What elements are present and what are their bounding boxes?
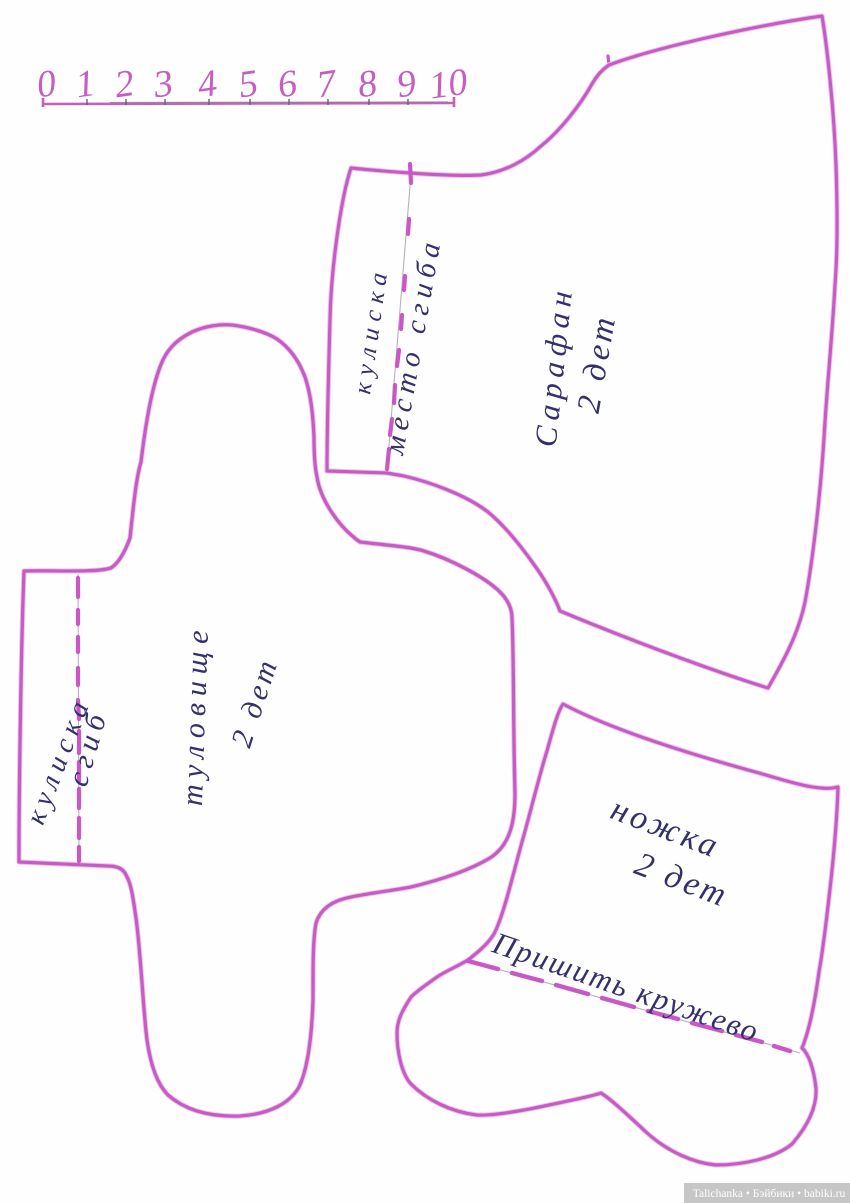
svg-text:2: 2: [112, 62, 137, 106]
svg-text:9: 9: [394, 62, 419, 106]
svg-text:6: 6: [275, 62, 300, 106]
svg-text:Пришить кружево: Пришить кружево: [487, 925, 764, 1050]
svg-text:4: 4: [195, 62, 220, 106]
svg-text:туловище: туловище: [176, 623, 215, 807]
svg-text:8: 8: [355, 62, 380, 106]
svg-text:Talichanka • Бэйбики • babiki.: Talichanka • Бэйбики • babiki.ru: [693, 1188, 846, 1200]
svg-text:1: 1: [73, 62, 98, 106]
svg-text:7: 7: [314, 62, 341, 107]
svg-text:Сарафан: Сарафан: [528, 283, 580, 448]
svg-text:2 дет: 2 дет: [630, 845, 734, 914]
svg-text:10: 10: [427, 61, 470, 108]
svg-text:2 дет: 2 дет: [225, 653, 285, 751]
svg-text:кулиска: кулиска: [349, 264, 394, 396]
svg-text:2 дет: 2 дет: [571, 311, 624, 416]
svg-text:5: 5: [236, 62, 261, 106]
svg-text:0: 0: [34, 62, 59, 106]
svg-text:3: 3: [150, 62, 176, 106]
